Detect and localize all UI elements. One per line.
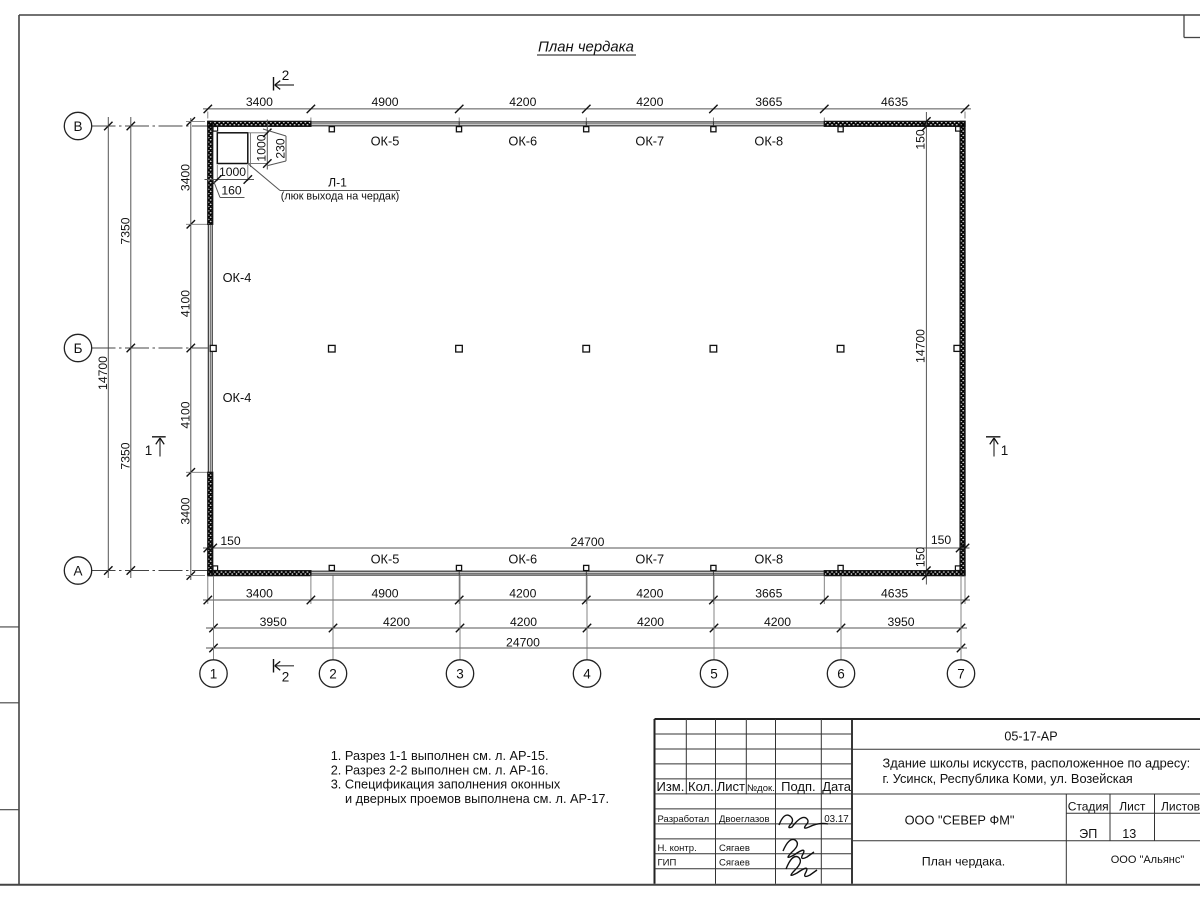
svg-text:Разработал: Разработал <box>658 814 710 825</box>
svg-text:ОК-8: ОК-8 <box>754 552 783 567</box>
svg-text:160: 160 <box>221 184 242 198</box>
svg-text:3400: 3400 <box>178 164 192 191</box>
svg-text:24700: 24700 <box>506 636 540 650</box>
svg-text:14700: 14700 <box>914 329 928 363</box>
svg-text:2: 2 <box>329 666 337 681</box>
svg-text:№док.: №док. <box>747 783 775 794</box>
svg-text:4200: 4200 <box>383 615 410 629</box>
svg-text:План чердака.: План чердака. <box>922 855 1005 869</box>
svg-text:4200: 4200 <box>636 587 663 601</box>
svg-text:7: 7 <box>957 666 965 681</box>
svg-text:1. Разрез 1-1 выполнен см. л.: 1. Разрез 1-1 выполнен см. л. АР-15. <box>331 748 549 763</box>
svg-text:4200: 4200 <box>509 95 536 109</box>
svg-text:150: 150 <box>931 533 952 547</box>
svg-text:ОК-4: ОК-4 <box>223 270 252 285</box>
svg-text:ОК-7: ОК-7 <box>635 552 664 567</box>
svg-text:Здание школы искусств, располо: Здание школы искусств, расположенное по … <box>883 756 1191 771</box>
svg-text:и дверных проемов выполнена см: и дверных проемов выполнена см. л. АР-17… <box>345 791 609 806</box>
svg-text:ОК-5: ОК-5 <box>371 552 400 567</box>
svg-text:1: 1 <box>145 443 153 458</box>
svg-text:3665: 3665 <box>755 95 782 109</box>
svg-text:13: 13 <box>1122 827 1136 841</box>
svg-text:В: В <box>73 119 82 134</box>
svg-text:4200: 4200 <box>509 587 536 601</box>
svg-text:230: 230 <box>273 138 287 159</box>
svg-text:7350: 7350 <box>118 442 132 469</box>
svg-text:7350: 7350 <box>118 217 132 244</box>
svg-text:ОК-5: ОК-5 <box>371 134 400 149</box>
svg-text:5: 5 <box>710 666 718 681</box>
svg-text:(люк выхода на чердак): (люк выхода на чердак) <box>281 191 400 203</box>
svg-text:Лист: Лист <box>1119 800 1146 814</box>
svg-text:4635: 4635 <box>881 95 908 109</box>
svg-text:150: 150 <box>914 129 928 150</box>
svg-text:1: 1 <box>1001 443 1009 458</box>
svg-text:1: 1 <box>210 666 218 681</box>
svg-text:Двоеглазов: Двоеглазов <box>719 814 770 825</box>
svg-text:ОК-4: ОК-4 <box>223 390 252 405</box>
svg-text:ООО "СЕВЕР ФМ": ООО "СЕВЕР ФМ" <box>905 813 1015 828</box>
svg-text:А: А <box>73 563 82 578</box>
svg-text:3400: 3400 <box>246 95 273 109</box>
svg-text:Подп.: Подп. <box>781 779 816 794</box>
svg-text:ОК-6: ОК-6 <box>508 134 537 149</box>
svg-text:3400: 3400 <box>178 497 192 524</box>
svg-text:2. Разрез 2-2 выполнен см. л.: 2. Разрез 2-2 выполнен см. л. АР-16. <box>331 762 549 777</box>
svg-text:3400: 3400 <box>246 587 273 601</box>
svg-text:2: 2 <box>282 68 290 83</box>
svg-text:14700: 14700 <box>96 356 110 390</box>
svg-text:4100: 4100 <box>178 290 192 317</box>
svg-text:Стадия: Стадия <box>1068 800 1109 814</box>
svg-text:1000: 1000 <box>219 165 246 179</box>
svg-text:ОК-7: ОК-7 <box>635 134 664 149</box>
svg-text:4900: 4900 <box>371 95 398 109</box>
svg-text:Дата: Дата <box>822 779 852 794</box>
svg-text:3950: 3950 <box>260 615 287 629</box>
svg-text:24700: 24700 <box>571 535 605 549</box>
svg-text:4200: 4200 <box>637 615 664 629</box>
svg-text:6: 6 <box>837 666 845 681</box>
svg-text:Н. контр.: Н. контр. <box>658 843 697 854</box>
svg-text:ОК-6: ОК-6 <box>508 552 537 567</box>
svg-text:4200: 4200 <box>636 95 663 109</box>
svg-text:150: 150 <box>220 534 241 548</box>
svg-text:150: 150 <box>914 547 928 568</box>
svg-text:4200: 4200 <box>764 615 791 629</box>
svg-text:2: 2 <box>282 670 290 685</box>
svg-text:4: 4 <box>583 666 591 681</box>
svg-text:4635: 4635 <box>881 587 908 601</box>
svg-text:Л-1: Л-1 <box>328 176 347 190</box>
svg-text:4900: 4900 <box>371 587 398 601</box>
svg-text:Лист: Лист <box>717 779 745 794</box>
svg-text:Б: Б <box>74 341 83 356</box>
svg-text:ЭП: ЭП <box>1079 827 1097 841</box>
svg-text:3: 3 <box>456 666 464 681</box>
svg-text:ООО "Альянс": ООО "Альянс" <box>1111 854 1185 866</box>
svg-text:Листов: Листов <box>1161 800 1200 814</box>
svg-text:ГИП: ГИП <box>658 858 677 869</box>
svg-text:3665: 3665 <box>755 587 782 601</box>
svg-text:3950: 3950 <box>887 615 914 629</box>
svg-text:План чердака: План чердака <box>538 40 634 56</box>
svg-text:г. Усинск, Республика Коми, ул: г. Усинск, Республика Коми, ул. Возейска… <box>883 771 1133 786</box>
svg-text:Сягаев: Сягаев <box>719 843 750 854</box>
svg-text:Кол.: Кол. <box>688 779 714 794</box>
svg-text:ОК-8: ОК-8 <box>754 134 783 149</box>
svg-text:4100: 4100 <box>178 401 192 428</box>
svg-text:1000: 1000 <box>255 134 269 161</box>
svg-text:Изм.: Изм. <box>656 779 684 794</box>
svg-text:05-17-АР: 05-17-АР <box>1004 730 1057 744</box>
svg-text:3. Спецификация заполнения око: 3. Спецификация заполнения оконных <box>331 777 561 792</box>
svg-text:Сягаев: Сягаев <box>719 858 750 869</box>
svg-text:4200: 4200 <box>510 615 537 629</box>
